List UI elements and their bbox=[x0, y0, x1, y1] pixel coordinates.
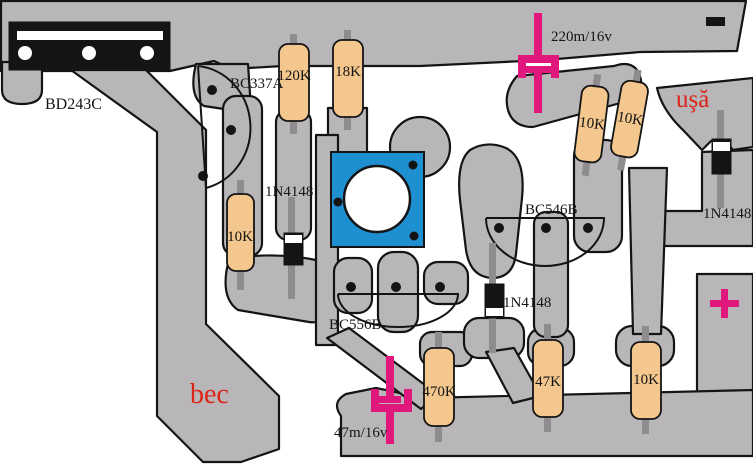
diode-cathode-stripe bbox=[486, 308, 503, 316]
copper-trace-finger-mid bbox=[378, 252, 418, 332]
to220-slot bbox=[17, 31, 163, 40]
resistor-value: 10K bbox=[578, 115, 606, 134]
copper-trace-mid-finger bbox=[534, 212, 568, 337]
pin-dot bbox=[435, 282, 445, 292]
cap-lead bbox=[386, 356, 394, 398]
copper-trace-right-L bbox=[664, 150, 753, 246]
pin-dot bbox=[391, 282, 401, 292]
cap-plate-bar bbox=[526, 66, 551, 73]
label-bd243c: BD243C bbox=[45, 96, 102, 113]
mounting-pad bbox=[331, 152, 424, 247]
label-bc337a: BC337A bbox=[230, 76, 284, 92]
pin-dot bbox=[541, 223, 551, 233]
to220-body bbox=[9, 22, 170, 70]
pin-dot bbox=[583, 223, 593, 233]
label-cap-47m: 47m/16v bbox=[334, 425, 388, 441]
resistor-10k-bottom: 10K bbox=[631, 326, 661, 434]
resistor-value: 18K bbox=[335, 64, 361, 80]
transistor-bd243c bbox=[9, 22, 170, 70]
resistor-47k: 47K bbox=[533, 324, 563, 432]
mounting-hole bbox=[344, 166, 410, 232]
resistor-value: 10K bbox=[633, 372, 659, 388]
label-bc556b: BC556B bbox=[329, 317, 382, 333]
copper-trace-mid-trunk bbox=[629, 168, 667, 334]
pad-dot bbox=[410, 232, 419, 241]
diode-cathode-stripe bbox=[285, 235, 302, 243]
pin-dot bbox=[207, 85, 217, 95]
pad-dot bbox=[409, 161, 418, 170]
minus-terminal-icon bbox=[706, 17, 725, 26]
diode-cathode-stripe bbox=[713, 142, 730, 151]
cap-plate-tab bbox=[404, 389, 412, 404]
label-net-bec: bec bbox=[190, 379, 229, 410]
cap-plate-bracket bbox=[518, 55, 559, 63]
to220-hole bbox=[82, 46, 96, 60]
pin-dot bbox=[494, 223, 504, 233]
pcb-board: 120K 18K 10K 10K 10K 470K 47K bbox=[0, 0, 753, 464]
cap-plate-tab bbox=[551, 63, 559, 78]
pad-dot bbox=[334, 198, 343, 207]
pin-dot bbox=[346, 282, 356, 292]
label-diode-center: 1N4148 bbox=[503, 295, 551, 311]
cap-plate-bracket bbox=[371, 404, 412, 412]
label-cap-220m: 220m/16v bbox=[551, 29, 612, 45]
label-net-usa: uşă bbox=[676, 86, 709, 113]
resistor-value: 10K bbox=[227, 229, 253, 245]
copper-trace-finger-right bbox=[424, 262, 468, 304]
pin-dot bbox=[198, 171, 208, 181]
to220-hole bbox=[18, 46, 32, 60]
resistor-value: 470K bbox=[422, 384, 456, 400]
cap-plate-tab bbox=[518, 63, 526, 78]
resistor-value: 47K bbox=[535, 374, 561, 390]
pin-dot bbox=[226, 125, 236, 135]
cap-plate-tab bbox=[371, 389, 379, 404]
cap-lead bbox=[534, 13, 542, 57]
label-diode-left: 1N4148 bbox=[265, 184, 313, 200]
resistor-18k: 18K bbox=[333, 30, 363, 130]
cap-lead bbox=[534, 73, 542, 113]
pcb-layout-diagram: 120K 18K 10K 10K 10K 470K 47K bbox=[0, 0, 753, 464]
label-diode-right: 1N4148 bbox=[703, 206, 751, 222]
to220-hole bbox=[140, 46, 154, 60]
plus-bar-v bbox=[721, 289, 728, 318]
label-bc546b: BC546B bbox=[525, 202, 578, 218]
